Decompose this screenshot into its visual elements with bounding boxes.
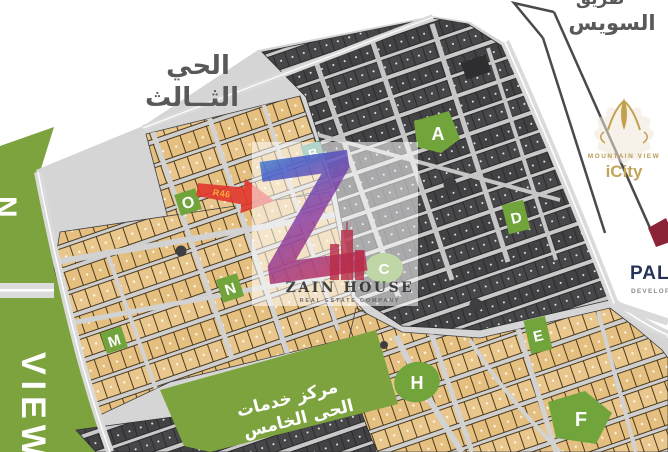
- strip-view-label: VIEW: [14, 352, 52, 452]
- icity-wordmark: iCity: [606, 162, 643, 181]
- strip-partial-letter: N: [0, 196, 22, 218]
- highway-label: السويس: [568, 11, 655, 35]
- masterplan-map: مركز خدمات الحى الخامس O B A: [0, 0, 668, 452]
- svg-text:N: N: [0, 196, 22, 218]
- district-label-line2: الثــالث: [145, 83, 239, 113]
- palm-subtitle: DEVELOPMENTS: [631, 288, 668, 295]
- green-strip-road-line: [0, 289, 54, 292]
- palm-wordmark: PALM: [630, 263, 668, 284]
- map-canvas: مركز خدمات الحى الخامس O B A: [0, 0, 668, 452]
- svg-text:H: H: [411, 373, 424, 393]
- svg-text:A: A: [432, 124, 445, 144]
- district-label-line1: الحي: [166, 51, 230, 81]
- watermark-subtitle: REAL ESTATE COMPANY: [300, 298, 401, 304]
- watermark-brand: ZAIN HOUSE: [286, 280, 415, 296]
- mountain-view-wordmark: MOUNTAIN VIEW: [588, 153, 660, 160]
- svg-text:VIEW: VIEW: [14, 352, 52, 452]
- highway-partial-word: طريق: [576, 0, 624, 9]
- svg-text:F: F: [575, 409, 587, 431]
- watermark: Z ZAIN HOUSE REAL ESTATE COMPANY: [243, 110, 418, 322]
